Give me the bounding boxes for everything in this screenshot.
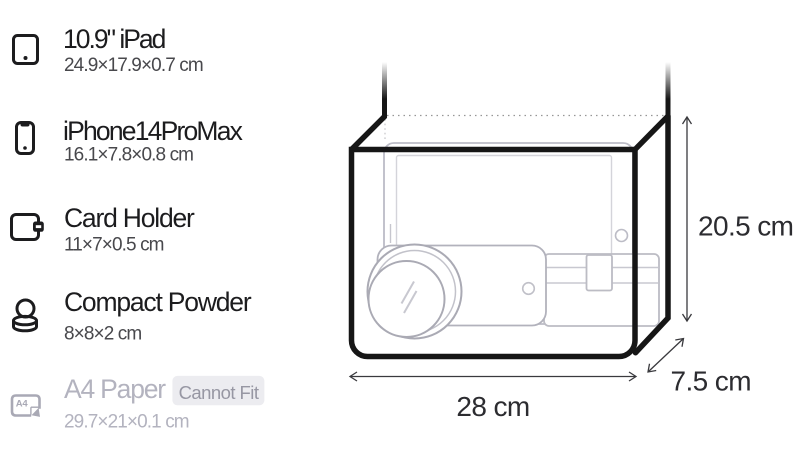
svg-text:A4 Paper: A4 Paper [64, 374, 166, 404]
svg-text:10.9" iPad: 10.9" iPad [63, 24, 166, 54]
svg-text:7.5 cm: 7.5 cm [671, 366, 751, 397]
svg-text:24.9×17.9×0.7 cm: 24.9×17.9×0.7 cm [64, 55, 203, 76]
svg-text:iPhone14ProMax: iPhone14ProMax [63, 116, 243, 146]
svg-text:28 cm: 28 cm [456, 391, 529, 422]
svg-text:11×7×0.5 cm: 11×7×0.5 cm [64, 235, 164, 256]
svg-text:A4: A4 [16, 399, 29, 410]
svg-text:16.1×7.8×0.8 cm: 16.1×7.8×0.8 cm [64, 145, 193, 166]
svg-text:Compact Powder: Compact Powder [64, 287, 252, 317]
svg-text:29.7×21×0.1 cm: 29.7×21×0.1 cm [64, 412, 189, 433]
svg-text:Cannot Fit: Cannot Fit [179, 382, 259, 403]
svg-text:20.5 cm: 20.5 cm [698, 211, 793, 242]
svg-text:8×8×2 cm: 8×8×2 cm [64, 324, 141, 345]
svg-text:Card Holder: Card Holder [64, 203, 195, 233]
